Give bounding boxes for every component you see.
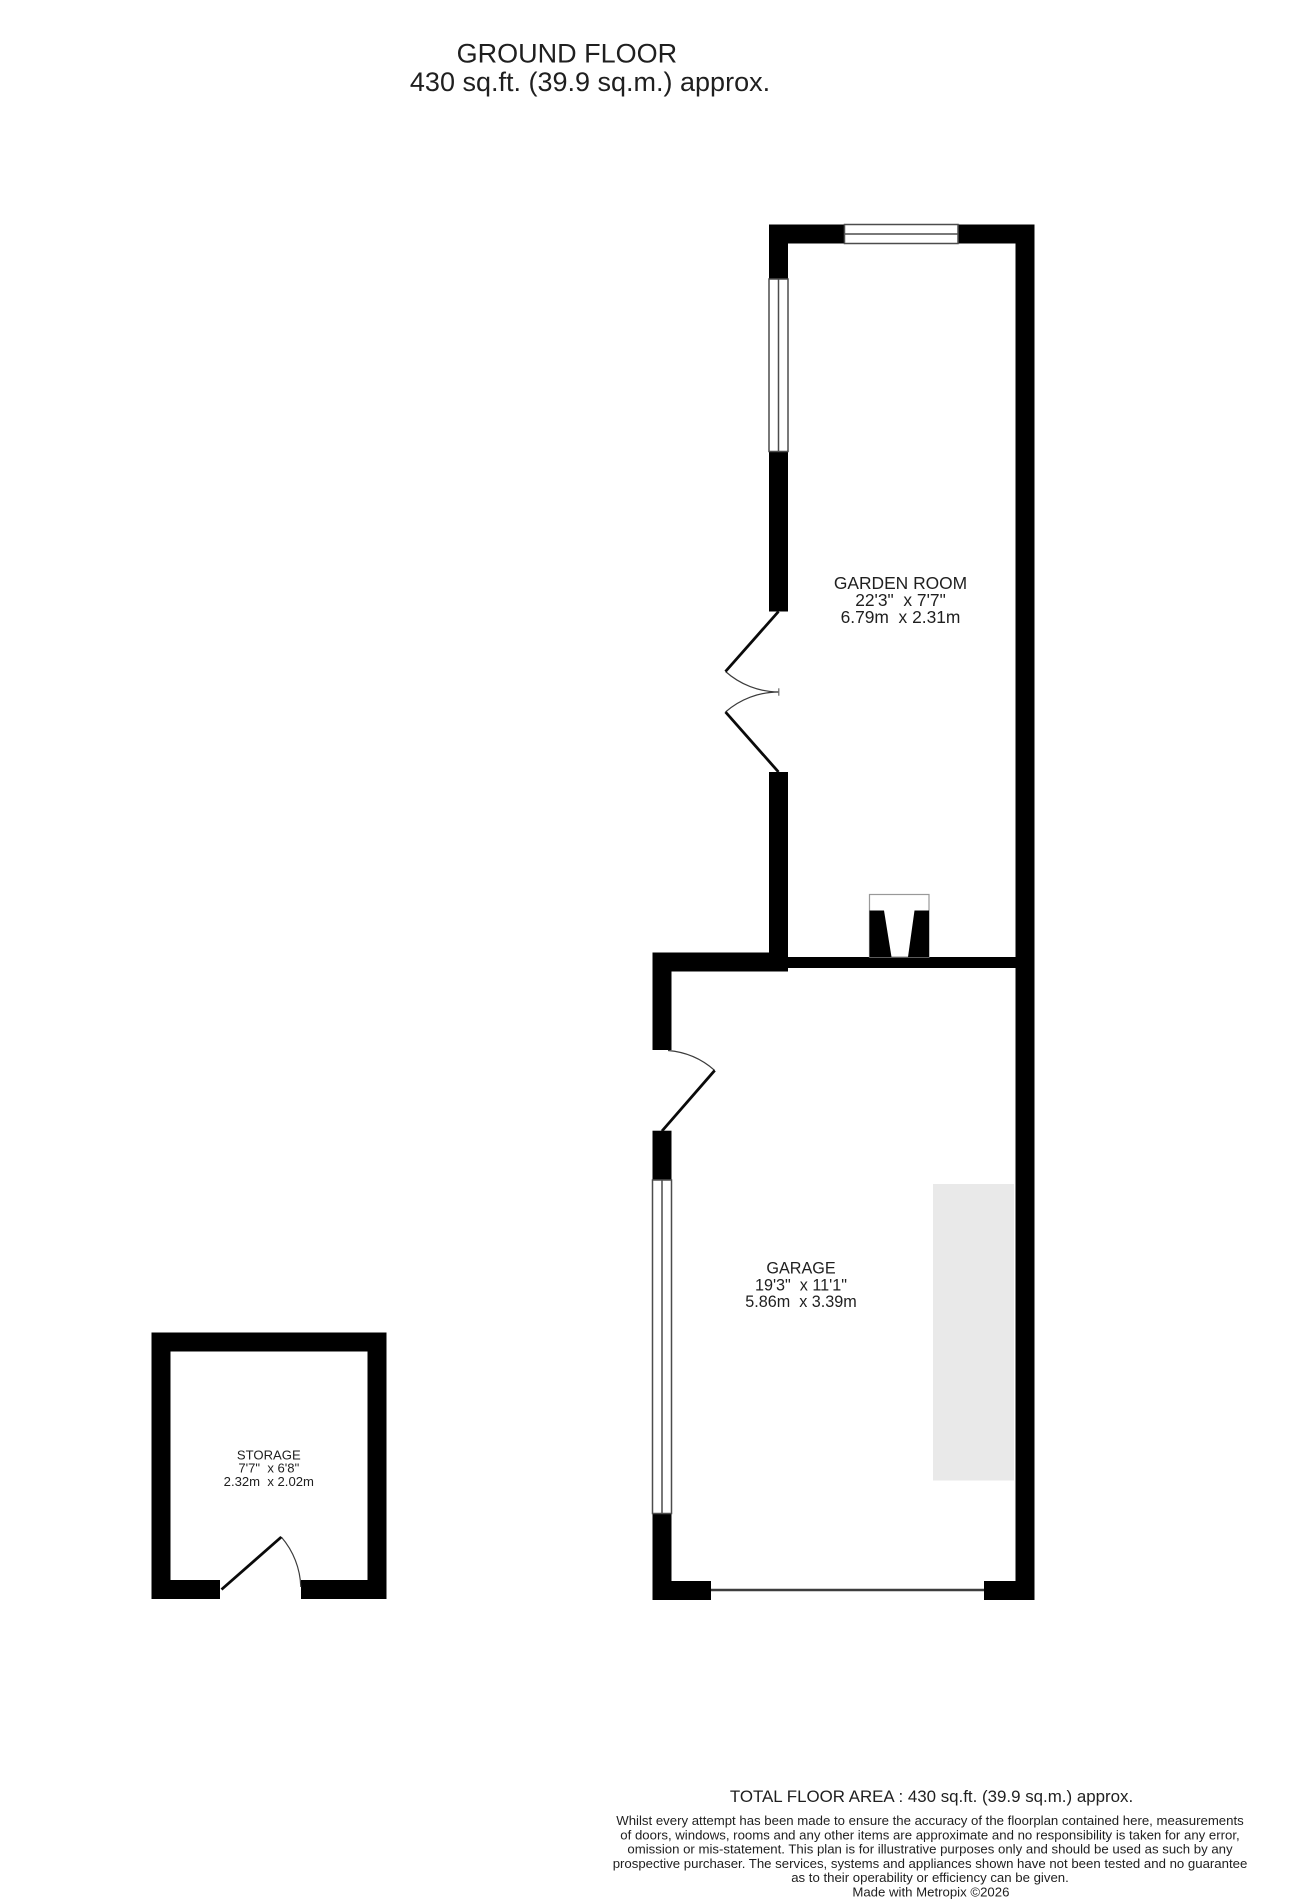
- svg-text:19'3" x 11'1": 19'3" x 11'1": [755, 1277, 847, 1295]
- svg-text:6.79m x 2.31m: 6.79m x 2.31m: [841, 607, 961, 627]
- svg-text:Made with Metropix ©2026: Made with Metropix ©2026: [852, 1885, 1009, 1900]
- svg-text:Whilst every attempt has been: Whilst every attempt has been made to en…: [616, 1813, 1244, 1828]
- svg-text:5.86m x 3.39m: 5.86m x 3.39m: [745, 1293, 857, 1311]
- svg-text:as to their operability or eff: as to their operability or efficiency ca…: [791, 1870, 1069, 1885]
- svg-text:430 sq.ft. (39.9 sq.m.) approx: 430 sq.ft. (39.9 sq.m.) approx.: [410, 67, 770, 97]
- svg-text:omission or mis-statement. Thi: omission or mis-statement. This plan is …: [627, 1842, 1233, 1857]
- svg-text:2.32m x 2.02m: 2.32m x 2.02m: [224, 1474, 314, 1489]
- svg-text:prospective purchaser. The ser: prospective purchaser. The services, sys…: [613, 1856, 1248, 1871]
- svg-text:of doors, windows, rooms and a: of doors, windows, rooms and any other i…: [620, 1827, 1239, 1842]
- svg-text:TOTAL FLOOR AREA : 430 sq.ft.: TOTAL FLOOR AREA : 430 sq.ft. (39.9 sq.m…: [730, 1787, 1133, 1806]
- svg-text:GROUND FLOOR: GROUND FLOOR: [457, 38, 678, 68]
- svg-text:GARAGE: GARAGE: [766, 1260, 835, 1278]
